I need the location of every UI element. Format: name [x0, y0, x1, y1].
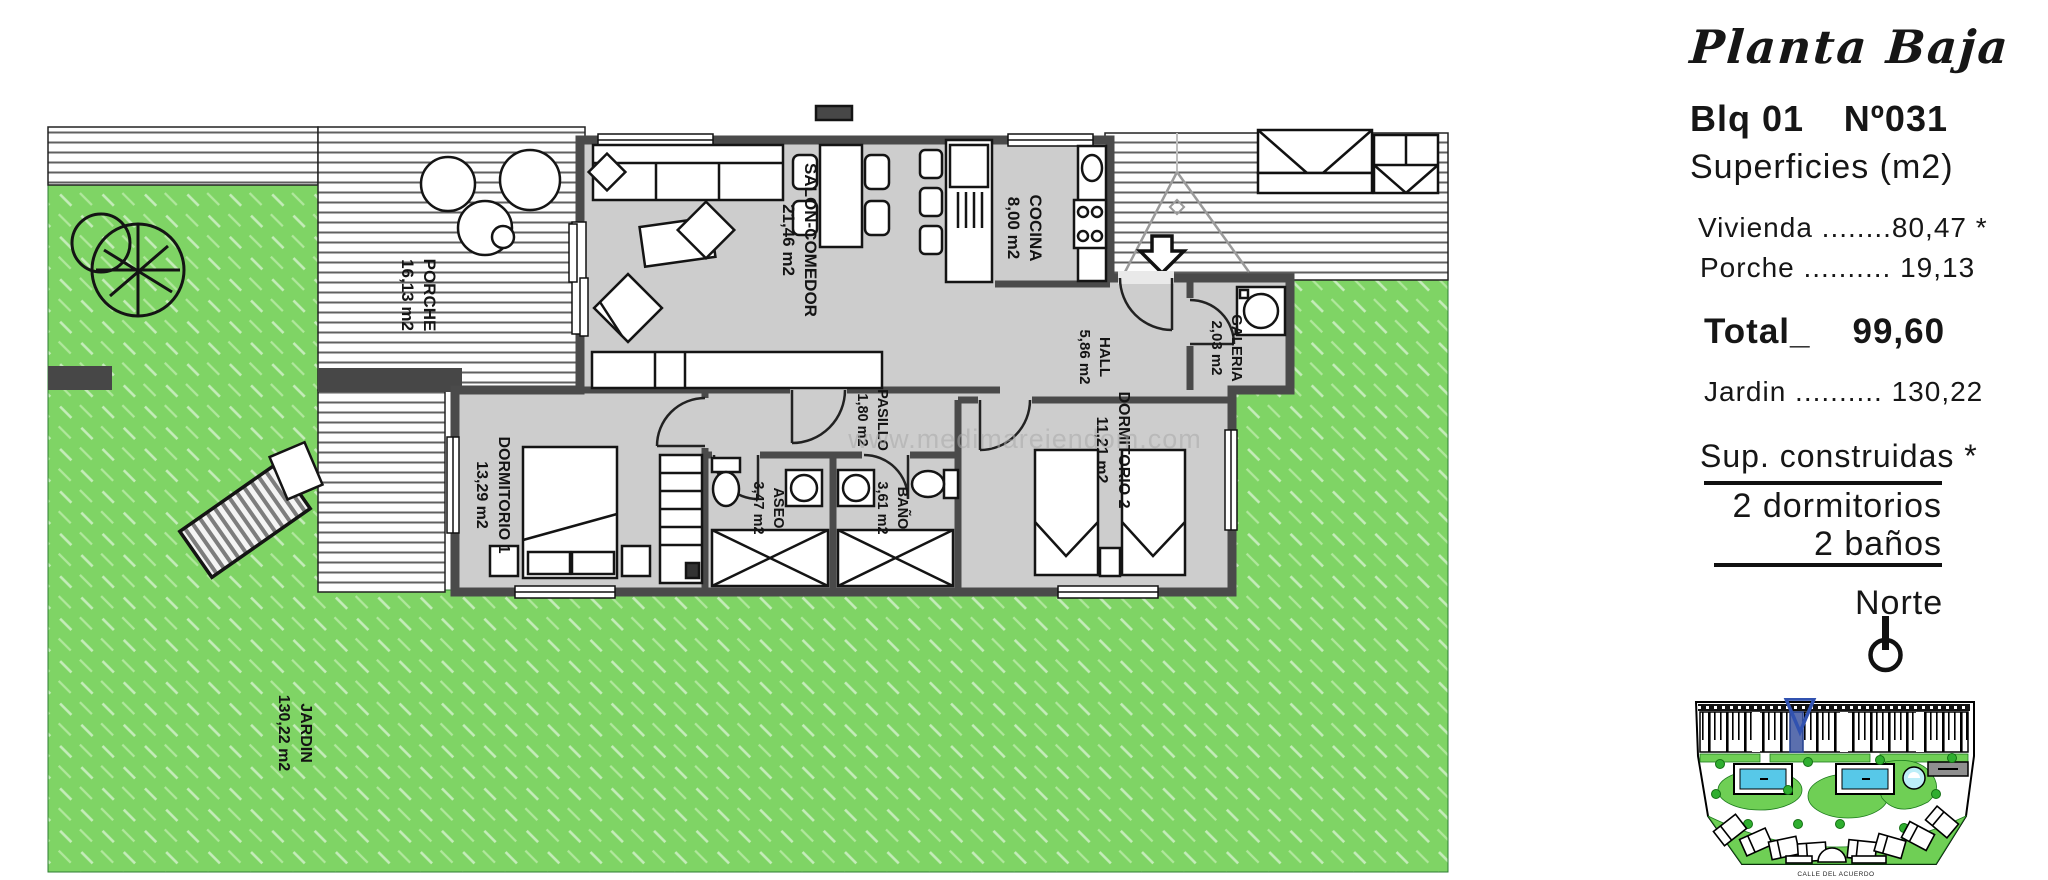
unit-number: Nº031 [1844, 98, 1948, 140]
room-label: JARDIN [297, 703, 314, 763]
garden-wall-left [48, 366, 112, 390]
site-units-row [1700, 712, 1968, 752]
info-panel: Planta Baja Blq 01 Nº031 Superficies (m2… [1660, 0, 2048, 880]
room-area: 8,00 m2 [1004, 197, 1023, 259]
sofa [589, 145, 783, 200]
bedrooms-line: 2 dormitorios [1690, 487, 1942, 526]
room-area: 3,61 m2 [874, 481, 890, 534]
sup-heading: Sup. construidas * [1700, 438, 1978, 475]
room-label: HALL [1096, 337, 1113, 377]
surfaces-heading: Superficies (m2) [1690, 148, 1954, 187]
room-area: 130,22 m2 [275, 695, 292, 772]
block-label: Blq 01 [1690, 98, 1804, 140]
porch-sliding-door [569, 222, 588, 336]
street-label: CALLE DEL ACUERDO [1797, 871, 1874, 878]
room-label: SALON-COMEDOR [801, 163, 820, 317]
room-label: PORCHE [420, 259, 439, 332]
jardin-line: Jardin .......... 130,22 [1704, 376, 1983, 408]
vivienda-line: Vivienda ........80,47 * [1698, 212, 1988, 244]
total-row: Total_ 99,60 [1704, 312, 1945, 352]
room-area: 16,13 m2 [398, 259, 417, 331]
block-row: Blq 01 Nº031 [1690, 98, 1948, 140]
site-plan-minimap: CALLE DEL ACUERDO [1690, 698, 1982, 880]
divider-line [1704, 481, 1942, 485]
room-area: 5,86 m2 [1076, 329, 1093, 384]
porche-line: Porche .......... 19,13 [1700, 252, 1975, 284]
room-area: 21,46 m2 [779, 204, 798, 276]
kitchen-counter [1074, 146, 1106, 281]
total-value: 99,60 [1852, 312, 1945, 352]
pergola-canopies [1258, 130, 1438, 193]
walkway-band [48, 127, 318, 185]
porch-deck-lower [318, 390, 445, 592]
room-label: GALERIA [1228, 314, 1245, 382]
room-area: 2,03 m2 [1208, 320, 1225, 375]
room-label: ASEO [770, 487, 786, 528]
floorplan-svg: PORCHE 16,13 m2 SALON-COMEDOR 21,46 m2 C… [0, 0, 1480, 880]
baths-line: 2 baños [1690, 525, 1942, 564]
porch-wall [318, 368, 462, 392]
total-label: Total_ [1704, 312, 1810, 352]
room-area: 13,29 m2 [473, 461, 490, 529]
stove-icon [1074, 200, 1106, 248]
floorplan-sheet: PORCHE 16,13 m2 SALON-COMEDOR 21,46 m2 C… [0, 0, 2048, 880]
plan-title: Planta Baja [1688, 20, 1952, 74]
watermark: www.medimareiendom.com [847, 424, 1202, 454]
room-area: 3,47 m2 [750, 481, 766, 534]
divider-line [1714, 563, 1942, 567]
room-label: DORMITORIO 1 [495, 436, 512, 553]
room-label: COCINA [1026, 194, 1045, 261]
room-label: BAÑO [894, 487, 912, 530]
sideboard [592, 352, 882, 388]
wardrobe [660, 455, 702, 583]
floorplan-drawing: PORCHE 16,13 m2 SALON-COMEDOR 21,46 m2 C… [0, 0, 1480, 880]
north-arrow-icon [1862, 616, 1908, 674]
boiler-unit [816, 106, 852, 120]
